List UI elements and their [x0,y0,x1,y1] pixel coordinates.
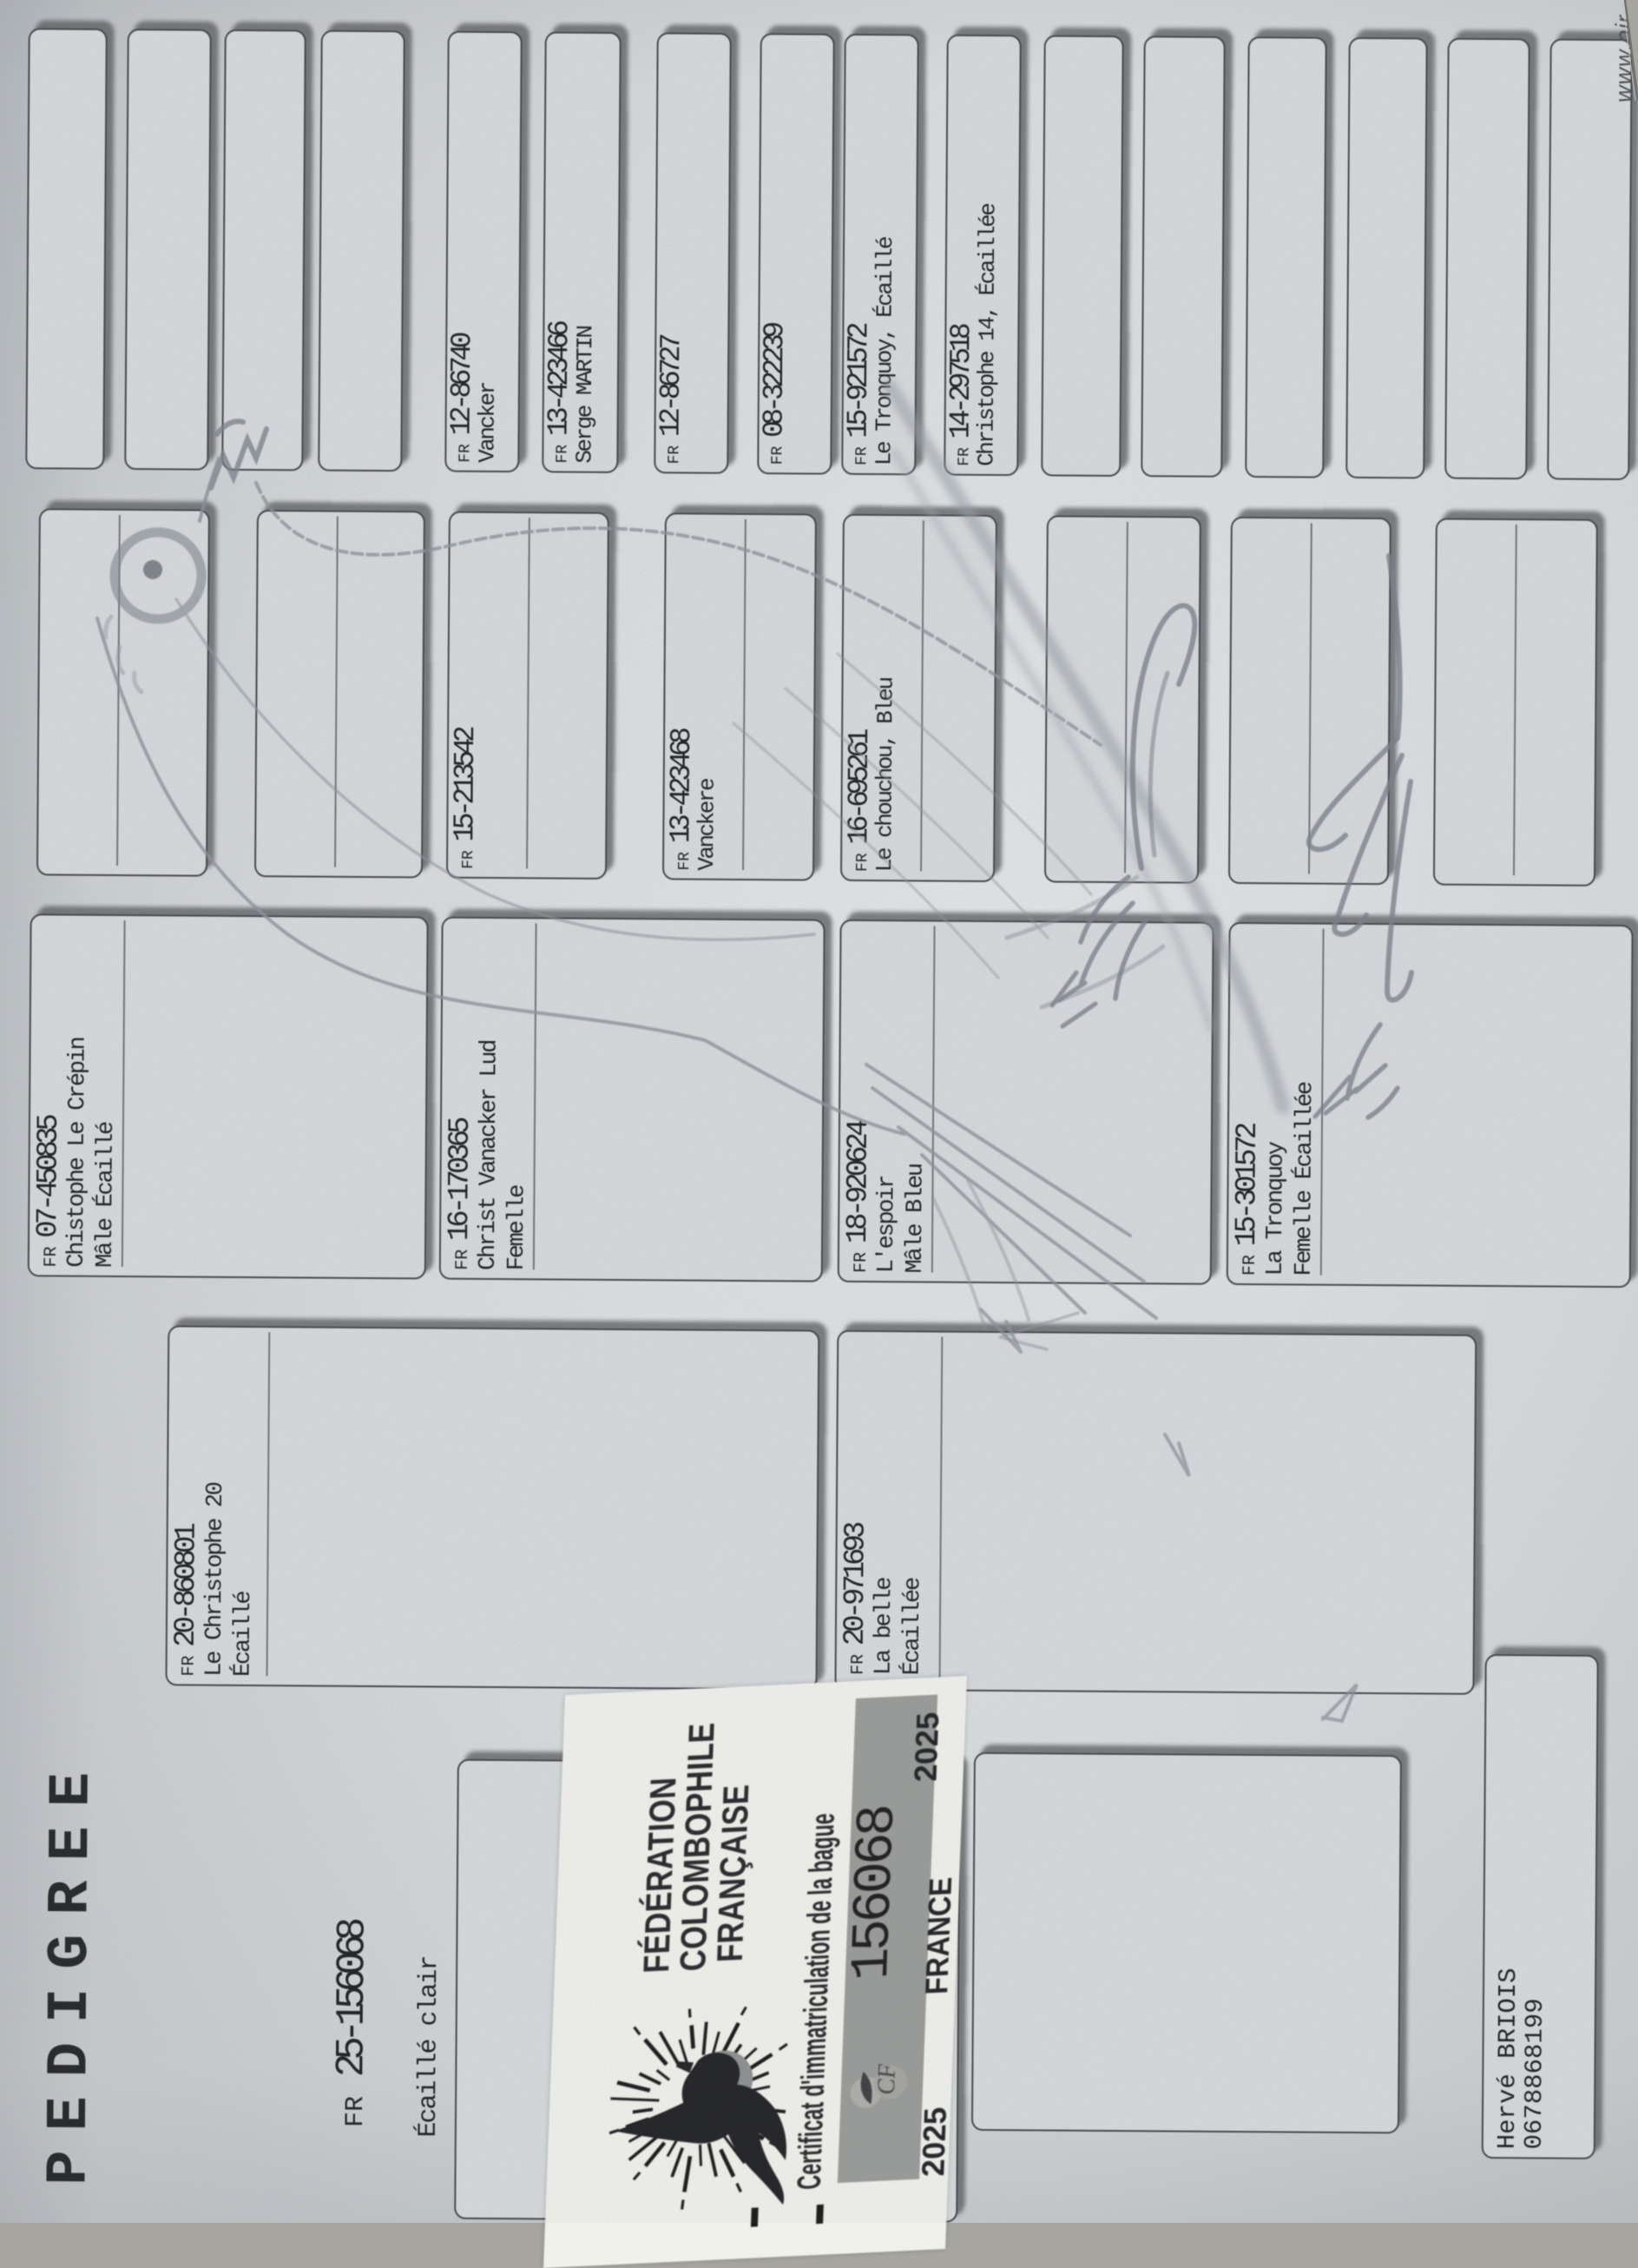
svg-text:CF: CF [873,2062,901,2095]
